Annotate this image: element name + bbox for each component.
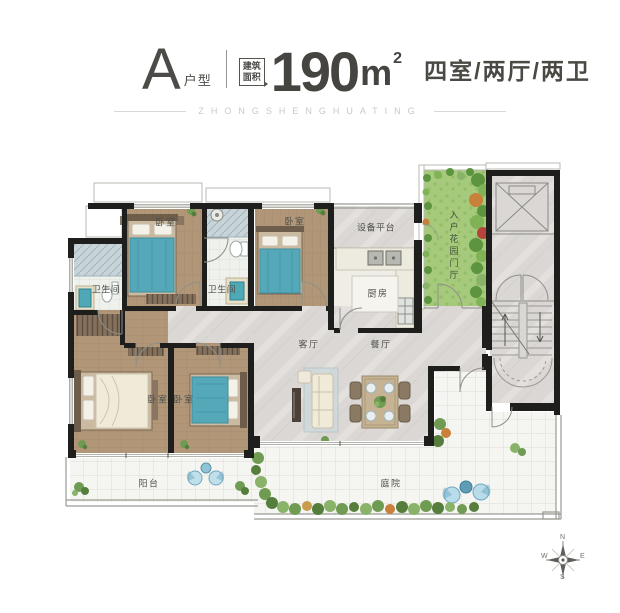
- compass: N W E S: [539, 534, 587, 590]
- room-label-balcony: 阳台: [138, 477, 159, 490]
- room-label-bathroom-1: 卫生间: [92, 283, 121, 296]
- room-label-bathroom-2: 卫生间: [208, 283, 237, 296]
- floorplan-drawing: [0, 0, 620, 613]
- room-label-courtyard: 庭院: [380, 477, 401, 490]
- room-label-bedroom-2: 卧室: [284, 215, 305, 228]
- room-label-bedroom-3: 卧室: [147, 393, 168, 406]
- room-label-dining-room: 餐厅: [370, 338, 391, 351]
- compass-south-label: S: [560, 574, 565, 581]
- room-label-entry-garden-foyer: 入户花园门厅: [448, 210, 461, 282]
- room-label-bedroom-4: 卧室: [173, 393, 194, 406]
- room-label-living-room: 客厅: [298, 338, 319, 351]
- room-label-equipment-platform: 设备平台: [357, 221, 395, 234]
- compass-north-label: N: [560, 534, 565, 541]
- elevator: [496, 183, 548, 231]
- compass-west-label: W: [541, 553, 548, 560]
- room-label-kitchen: 厨房: [367, 287, 388, 300]
- room-label-bedroom-1: 卧室: [155, 216, 176, 229]
- floorplan-page: A 户型 建筑 面积 190 m 2 四室/两厅/两卫 ZHONGSHENGHU…: [0, 0, 620, 613]
- compass-east-label: E: [580, 553, 585, 560]
